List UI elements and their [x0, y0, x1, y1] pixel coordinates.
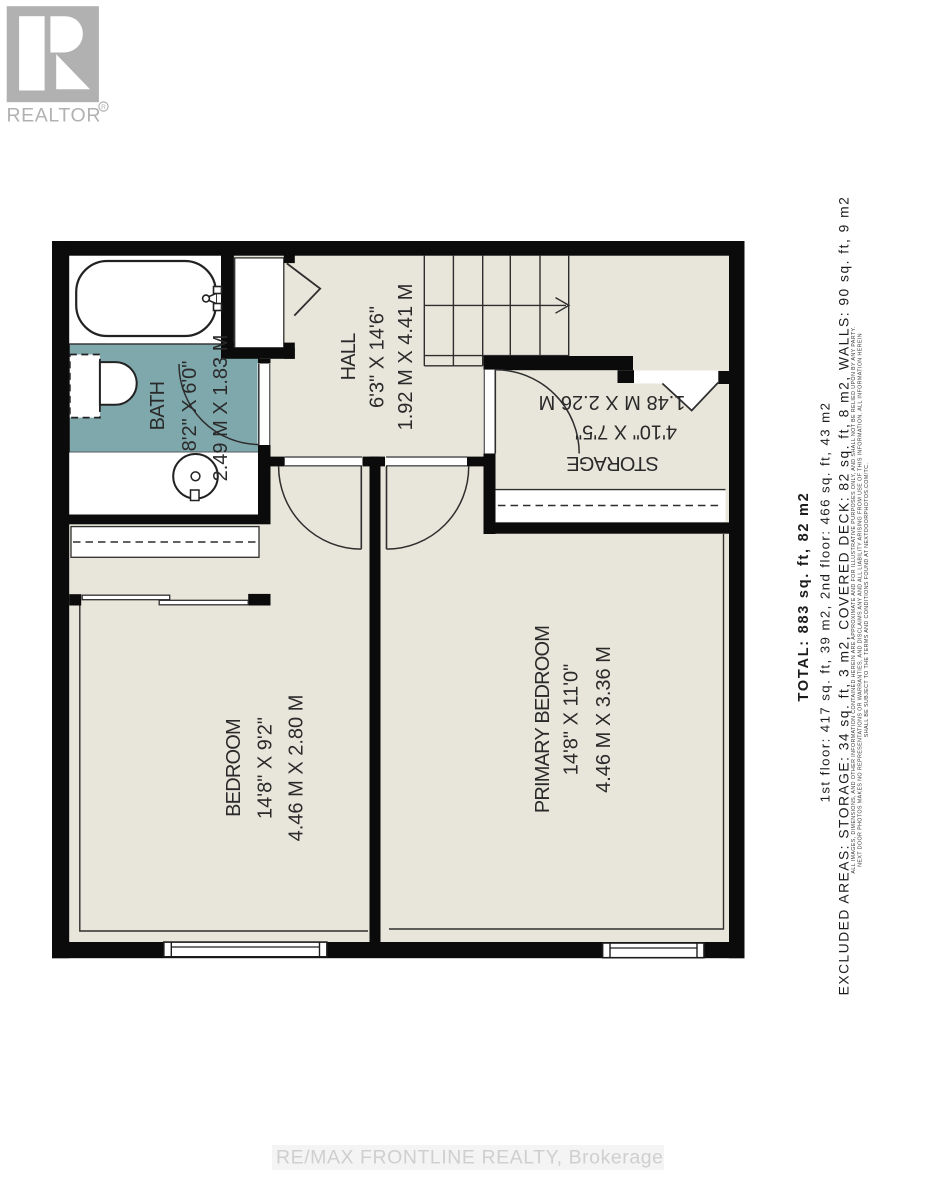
- svg-text:2.49 M X 1.83 M: 2.49 M X 1.83 M: [210, 335, 232, 482]
- svg-text:TOTAL: 883 sq. ft, 82 m2: TOTAL: 883 sq. ft, 82 m2: [796, 492, 812, 702]
- svg-text:14'8" X 11'0": 14'8" X 11'0": [561, 664, 583, 776]
- svg-text:BEDROOM: BEDROOM: [223, 719, 245, 817]
- svg-text:8'2" X 6'0": 8'2" X 6'0": [179, 361, 201, 452]
- svg-text:1.92 M X 4.41 M: 1.92 M X 4.41 M: [395, 284, 417, 431]
- svg-text:6'3" X 14'6": 6'3" X 14'6": [367, 306, 389, 408]
- svg-text:PRIMARY BEDROOM: PRIMARY BEDROOM: [532, 626, 554, 813]
- svg-text:NEXT DOOR PHOTOS MAKES NO REPR: NEXT DOOR PHOTOS MAKES NO REPRESENTATION…: [858, 333, 864, 867]
- svg-text:STORAGE: STORAGE: [567, 452, 659, 474]
- svg-text:1.48 M X 2.26 M: 1.48 M X 2.26 M: [539, 391, 686, 413]
- svg-text:1st floor: 417 sq. ft, 39 m2,: 1st floor: 417 sq. ft, 39 m2, 2nd floor:…: [818, 402, 833, 803]
- svg-text:14'8" X 9'2": 14'8" X 9'2": [255, 717, 277, 819]
- svg-text:SHALL BE SUBJECT TO THE TERMS: SHALL BE SUBJECT TO THE TERMS AND CONDIT…: [864, 463, 870, 738]
- svg-text:ALL IMAGES, DIMENSIONS, AND OT: ALL IMAGES, DIMENSIONS, AND OTHER INFORM…: [851, 326, 857, 873]
- svg-text:REALTOR: REALTOR: [7, 105, 102, 127]
- svg-text:HALL: HALL: [338, 333, 360, 381]
- svg-text:4.46 M X 3.36 M: 4.46 M X 3.36 M: [593, 646, 615, 793]
- svg-text:RE/MAX FRONTLINE REALTY, Broke: RE/MAX FRONTLINE REALTY, Brokerage: [276, 1147, 664, 1169]
- svg-text:EXCLUDED AREAS: STORAGE: 34 sq: EXCLUDED AREAS: STORAGE: 34 sq. ft, 3 m2…: [837, 196, 852, 996]
- svg-text:R: R: [101, 104, 106, 111]
- svg-text:4'10" X 7'5": 4'10" X 7'5": [575, 421, 677, 443]
- svg-text:4.46 M X 2.80 M: 4.46 M X 2.80 M: [286, 695, 308, 842]
- svg-text:BATH: BATH: [147, 382, 169, 431]
